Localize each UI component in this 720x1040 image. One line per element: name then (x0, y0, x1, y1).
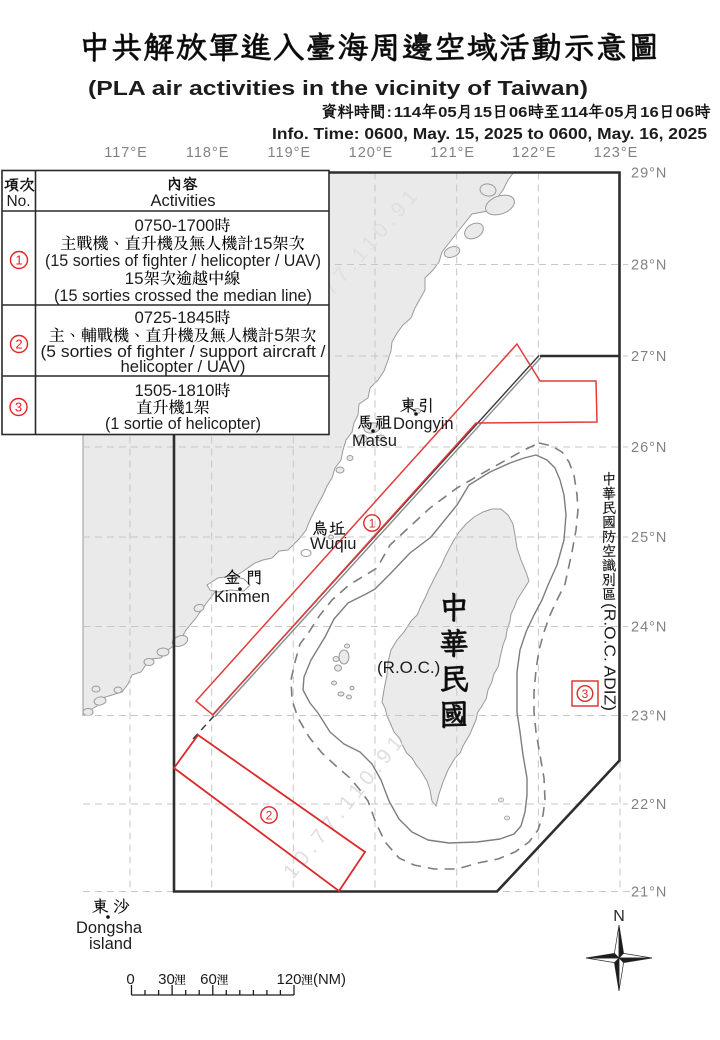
svg-text:60: 60 (200, 971, 217, 988)
svg-text:30: 30 (158, 971, 175, 988)
svg-text:(R.O.C.): (R.O.C.) (377, 658, 440, 677)
svg-text:0: 0 (126, 971, 134, 988)
svg-text:05: 05 (605, 104, 624, 121)
svg-text:helicopter / UAV): helicopter / UAV) (121, 357, 246, 376)
svg-text:N: N (613, 908, 625, 925)
svg-text:29°N: 29°N (631, 166, 667, 182)
svg-text:23°N: 23°N (631, 709, 667, 725)
svg-text:122°E: 122°E (512, 145, 557, 161)
svg-text:114: 114 (561, 104, 589, 121)
svg-text:(R.O.C. ADIZ): (R.O.C. ADIZ) (601, 603, 618, 711)
svg-text:2: 2 (266, 808, 273, 822)
svg-text:117°E: 117°E (104, 145, 148, 161)
svg-text:22°N: 22°N (631, 797, 667, 813)
svg-text:Activities: Activities (150, 192, 215, 210)
svg-text:15: 15 (474, 104, 493, 121)
svg-text:0750-1700: 0750-1700 (134, 216, 214, 235)
svg-text:Matsu: Matsu (352, 432, 397, 450)
svg-text:2: 2 (15, 337, 22, 352)
svg-text:(15 sorties crossed the median: (15 sorties crossed the median line) (54, 286, 312, 305)
svg-text:0725-1845: 0725-1845 (134, 308, 214, 327)
svg-text:Dongyin: Dongyin (393, 415, 454, 433)
svg-text:06: 06 (676, 104, 695, 121)
svg-text:123°E: 123°E (594, 145, 639, 161)
svg-text:(PLA air activities in the vic: (PLA air activities in the vicinity of T… (88, 77, 588, 100)
svg-text:120: 120 (276, 971, 301, 988)
svg-text:island: island (89, 935, 132, 953)
svg-text:(1 sortie of helicopter): (1 sortie of helicopter) (105, 414, 261, 433)
svg-text:26°N: 26°N (631, 440, 667, 456)
svg-text:24°N: 24°N (631, 620, 667, 636)
svg-text:(15 sorties of fighter / helic: (15 sorties of fighter / helicopter / UA… (45, 251, 321, 270)
svg-text:No.: No. (6, 193, 30, 210)
svg-text:1: 1 (15, 253, 22, 268)
svg-text:25°N: 25°N (631, 530, 667, 546)
svg-text:Wuqiu: Wuqiu (310, 535, 356, 553)
svg-text:16: 16 (640, 104, 659, 121)
svg-text:3: 3 (582, 687, 589, 701)
svg-text:Kinmen: Kinmen (214, 588, 270, 606)
svg-text:21°N: 21°N (631, 885, 667, 901)
svg-text:3: 3 (15, 400, 22, 415)
svg-text:119°E: 119°E (268, 145, 312, 161)
svg-text:Info. Time: 0600, May. 15, 202: Info. Time: 0600, May. 15, 2025 to 0600,… (272, 126, 707, 143)
svg-text:120°E: 120°E (349, 145, 394, 161)
svg-text::: : (387, 104, 392, 121)
svg-text:118°E: 118°E (186, 145, 230, 161)
svg-text:27°N: 27°N (631, 349, 667, 365)
svg-text:1: 1 (369, 516, 376, 530)
svg-text:1505-1810: 1505-1810 (134, 381, 214, 400)
svg-text:(NM): (NM) (313, 971, 346, 988)
svg-text:114: 114 (394, 104, 422, 121)
svg-text:121°E: 121°E (430, 145, 475, 161)
svg-text:05: 05 (438, 104, 457, 121)
svg-text:06: 06 (509, 104, 528, 121)
svg-text:28°N: 28°N (631, 258, 667, 274)
